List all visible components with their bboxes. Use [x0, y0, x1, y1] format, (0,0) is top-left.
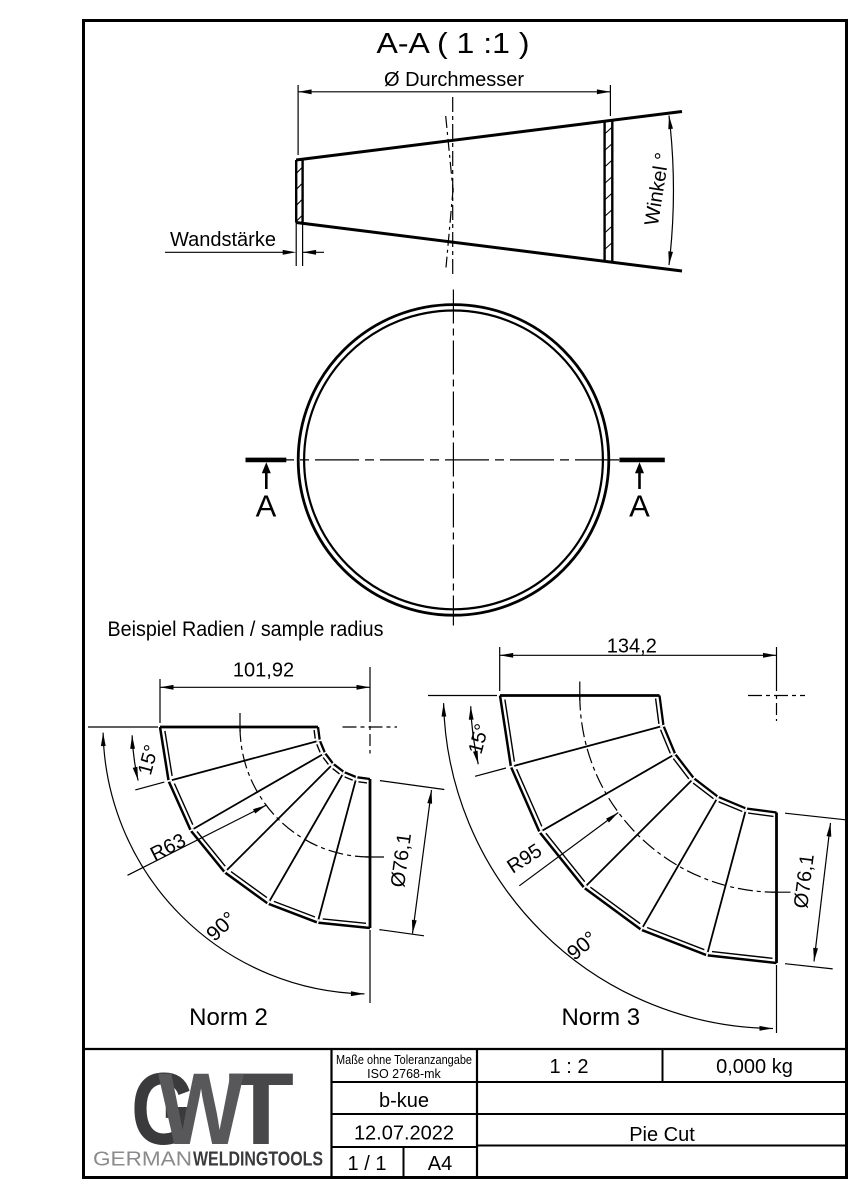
svg-text:Norm 2: Norm 2 — [189, 1004, 268, 1031]
svg-text:A: A — [256, 489, 277, 524]
svg-text:A: A — [629, 489, 650, 524]
svg-text:12.07.2022: 12.07.2022 — [354, 1123, 454, 1145]
svg-text:GERMAN: GERMAN — [93, 1148, 192, 1171]
svg-text:Beispiel Radien / sample radiu: Beispiel Radien / sample radius — [108, 617, 384, 641]
svg-text:Pie Cut: Pie Cut — [629, 1124, 695, 1146]
svg-text:WELDINGTOOLS: WELDINGTOOLS — [193, 1148, 323, 1171]
svg-text:Maße ohne Toleranzangabe: Maße ohne Toleranzangabe — [336, 1053, 472, 1067]
svg-text:134,2: 134,2 — [607, 636, 657, 658]
svg-text:1 : 2: 1 : 2 — [550, 1056, 589, 1078]
svg-text:Norm 3: Norm 3 — [561, 1004, 640, 1031]
svg-text:A4: A4 — [428, 1153, 452, 1175]
svg-text:Wandstärke: Wandstärke — [170, 229, 276, 251]
svg-text:1 / 1: 1 / 1 — [348, 1153, 387, 1175]
svg-text:ISO 2768-mk: ISO 2768-mk — [367, 1067, 441, 1081]
svg-text:Ø Durchmesser: Ø Durchmesser — [384, 69, 524, 91]
svg-text:0,000 kg: 0,000 kg — [716, 1056, 793, 1078]
svg-text:b-kue: b-kue — [379, 1090, 429, 1112]
svg-text:101,92: 101,92 — [233, 660, 294, 682]
svg-text:A-A ( 1 :1 ): A-A ( 1 :1 ) — [377, 28, 530, 60]
